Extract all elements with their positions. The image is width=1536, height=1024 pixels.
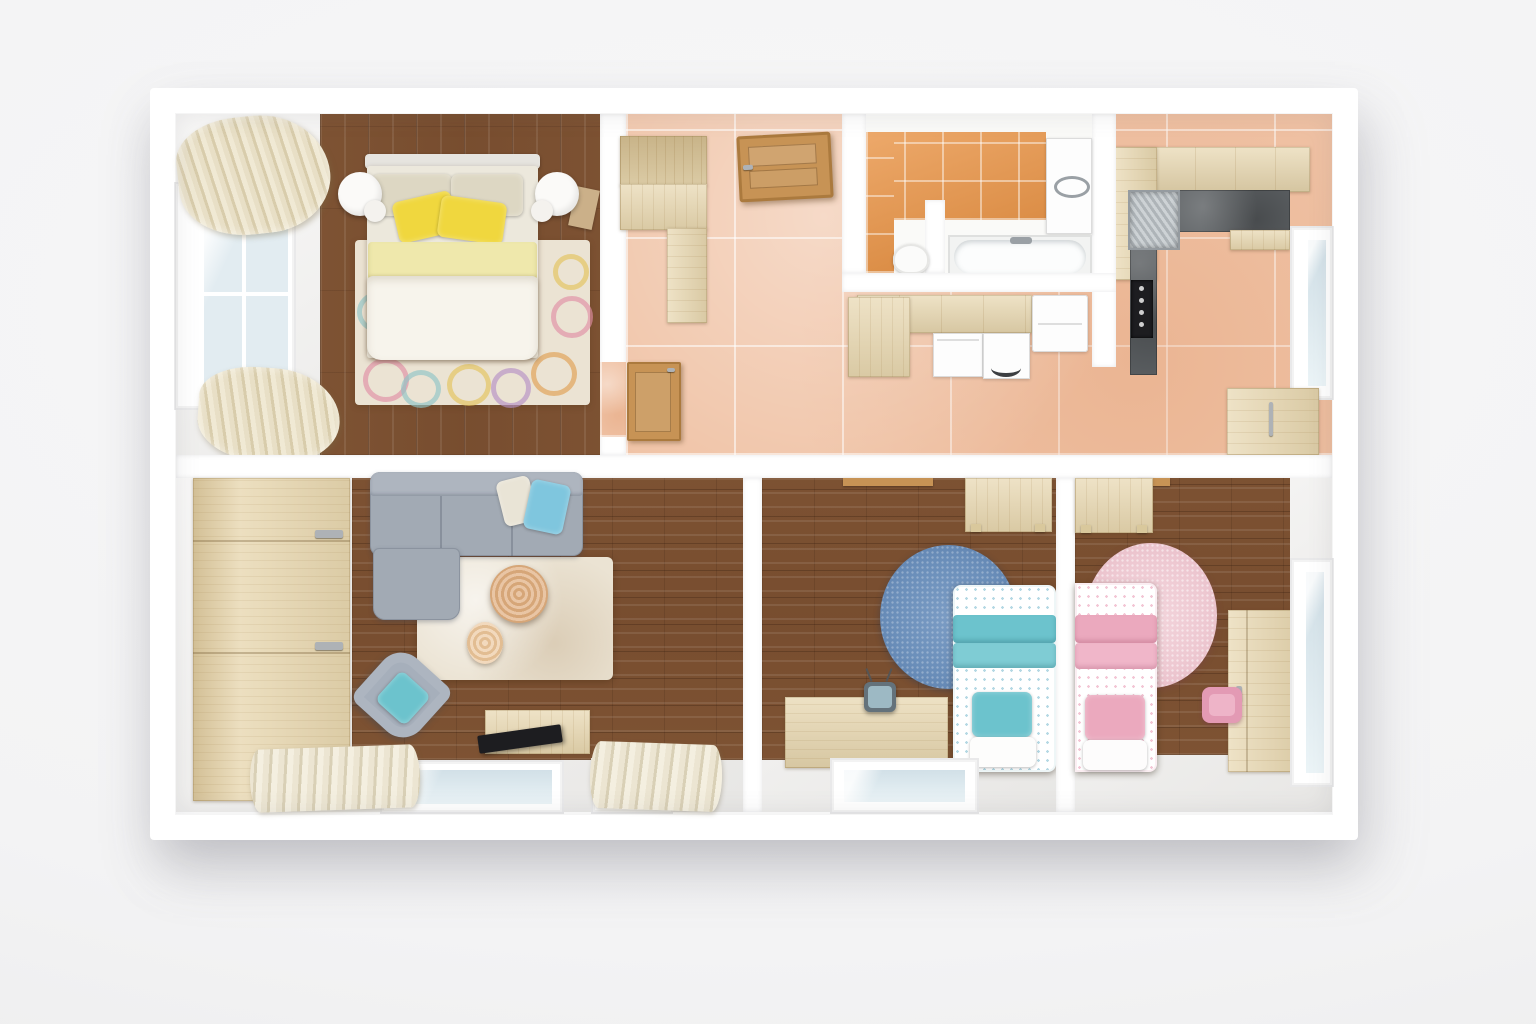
desk-foot — [1081, 525, 1091, 533]
kidspink-blanket-fold-2 — [1075, 643, 1157, 669]
bathtub-faucet — [1010, 237, 1032, 244]
window-mullion — [202, 292, 290, 296]
kidsblue-blanket-fold-2 — [953, 643, 1056, 668]
bedroom-doorway-opening — [600, 362, 626, 437]
cooktop-knob — [1139, 286, 1144, 291]
double-bed — [365, 154, 540, 362]
yellow-pillow-right — [436, 195, 507, 246]
cabinet-handle — [1269, 402, 1273, 436]
kidspink-window — [1292, 560, 1332, 785]
kitchen-window — [1292, 228, 1332, 398]
rug-ring — [553, 254, 589, 290]
dishwasher-line — [937, 339, 979, 341]
kidsblue-pillow-white — [970, 737, 1036, 767]
cooktop-knob — [1139, 322, 1144, 327]
nightstand-left — [338, 172, 382, 216]
washing-machine-handle — [991, 359, 1021, 377]
side-table — [467, 622, 503, 664]
bathroom-wall-bottom — [842, 273, 1116, 292]
bed-blanket-fold — [368, 242, 537, 280]
kidspink-desk — [1075, 478, 1153, 533]
dishwasher — [933, 333, 983, 377]
kidsblue-window — [832, 760, 977, 812]
room-living — [176, 478, 743, 812]
kidsblue-pillow-teal — [972, 692, 1032, 737]
wardrobe-handle — [315, 530, 343, 538]
kidsblue-open-door — [843, 478, 933, 486]
fridge-line — [1038, 323, 1082, 325]
wall-middle-horizontal — [176, 455, 1332, 478]
nightstand-right — [535, 172, 579, 216]
sofa-chaise — [373, 548, 460, 620]
kidspink-pillow-white — [1083, 740, 1147, 770]
washing-machine — [983, 333, 1030, 379]
entrance-door-panel — [749, 167, 818, 189]
rug-ring — [447, 364, 491, 406]
bathroom-block — [842, 114, 1116, 380]
kidsblue-retro-tv — [860, 672, 900, 712]
coffee-table — [490, 565, 548, 623]
bedroom-door-handle — [667, 368, 675, 372]
toilet — [893, 244, 929, 274]
hall-wardrobe-front — [620, 184, 707, 230]
page-background — [0, 0, 1536, 1024]
bathtub-basin — [954, 240, 1086, 274]
wardrobe-seam — [1246, 610, 1248, 772]
desk-foot — [971, 524, 981, 532]
desk-foot — [1137, 525, 1147, 533]
kitchen-under-cabinet — [1230, 230, 1290, 250]
bedroom-door — [627, 362, 681, 441]
sofa-seam — [440, 496, 442, 556]
tv-screen — [868, 686, 892, 708]
kitchen-counter-cabinet — [848, 297, 910, 377]
cooktop-knob — [1139, 310, 1144, 315]
fridge — [1032, 295, 1088, 352]
kitchen-small-cabinet — [1227, 388, 1319, 455]
bathroom-orange-tiles-left — [866, 132, 894, 273]
desk-foot — [1035, 524, 1045, 532]
bed-duvet — [367, 276, 538, 360]
kitchen-window-glass — [1306, 238, 1328, 388]
wardrobe-seam — [193, 652, 350, 654]
wall-kidsblue-kidspink — [1056, 478, 1075, 812]
living-curtain-left — [249, 744, 421, 813]
entrance-door-handle — [743, 165, 753, 171]
kidspink-pillow-pink — [1085, 695, 1145, 740]
kidspink-chair — [1202, 687, 1242, 723]
kidsblue-bed — [953, 585, 1056, 772]
hall-wardrobe-top-face — [620, 136, 707, 186]
nightstand-left-tier — [364, 200, 386, 222]
rug-ring — [491, 368, 531, 408]
kitchen-cooktop — [1131, 280, 1153, 338]
bathroom-wall-left — [842, 114, 866, 273]
hall-wardrobe — [620, 136, 707, 230]
wardrobe-handle — [315, 642, 343, 650]
nightstand-right-tier — [531, 200, 553, 222]
room-kids-pink — [1075, 478, 1332, 812]
living-curtain-right — [589, 741, 723, 813]
wall-bathroom-kitchen — [1092, 114, 1116, 367]
kidspink-chair-seat — [1209, 694, 1235, 716]
wardrobe-seam — [193, 540, 350, 542]
bedroom-door-panel — [635, 372, 671, 432]
kidsblue-blanket-fold-1 — [953, 615, 1056, 643]
rug-ring — [401, 370, 441, 408]
kidspink-window-glass — [1304, 570, 1326, 775]
floor-plan — [150, 88, 1358, 840]
hall-wardrobe-column — [667, 228, 707, 323]
kidspink-blanket-fold-1 — [1075, 615, 1157, 643]
kidsblue-desk — [965, 478, 1052, 532]
kidspink-bed — [1075, 583, 1157, 772]
room-kids-blue — [762, 478, 1056, 812]
cooktop-knob — [1139, 298, 1144, 303]
bathroom-cabinet-handle — [1054, 176, 1090, 198]
armchair — [353, 650, 450, 750]
entrance-door-panel — [748, 143, 817, 167]
kitchen-sink — [1128, 190, 1180, 250]
room-main-bedroom — [176, 114, 600, 455]
bathroom-cabinet — [1046, 138, 1092, 234]
wall-living-kidsblue — [743, 478, 762, 812]
entrance-door — [736, 132, 833, 203]
kidsblue-window-glass — [842, 768, 967, 804]
rug-ring — [551, 296, 593, 338]
